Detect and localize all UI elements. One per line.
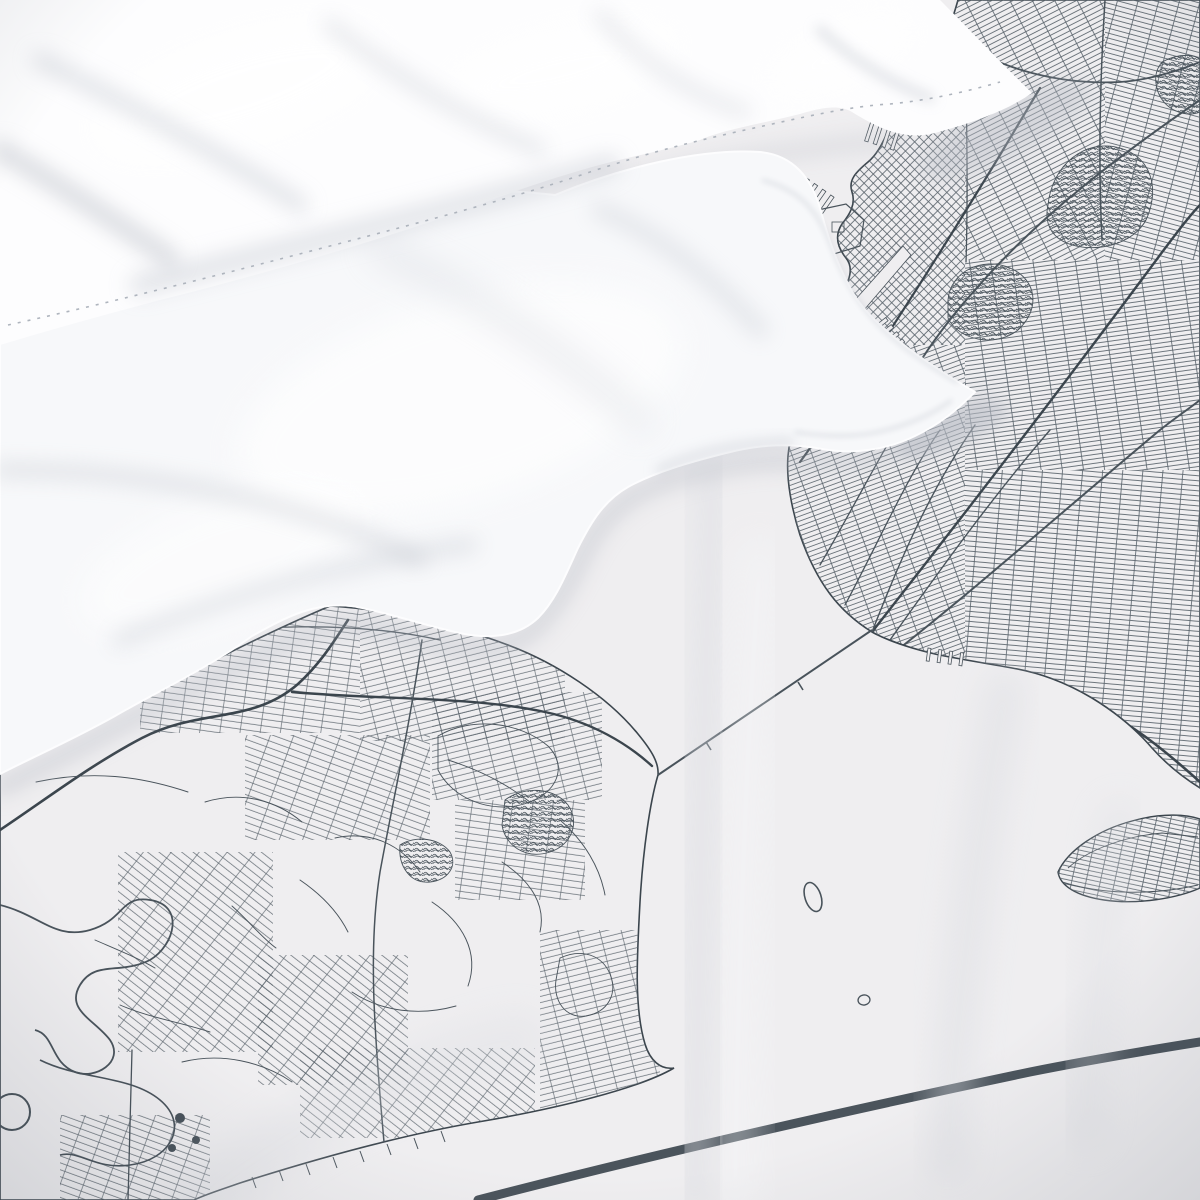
bedding-scene-svg <box>0 0 1200 1200</box>
photo-vignette <box>0 0 1200 1200</box>
product-photo <box>0 0 1200 1200</box>
